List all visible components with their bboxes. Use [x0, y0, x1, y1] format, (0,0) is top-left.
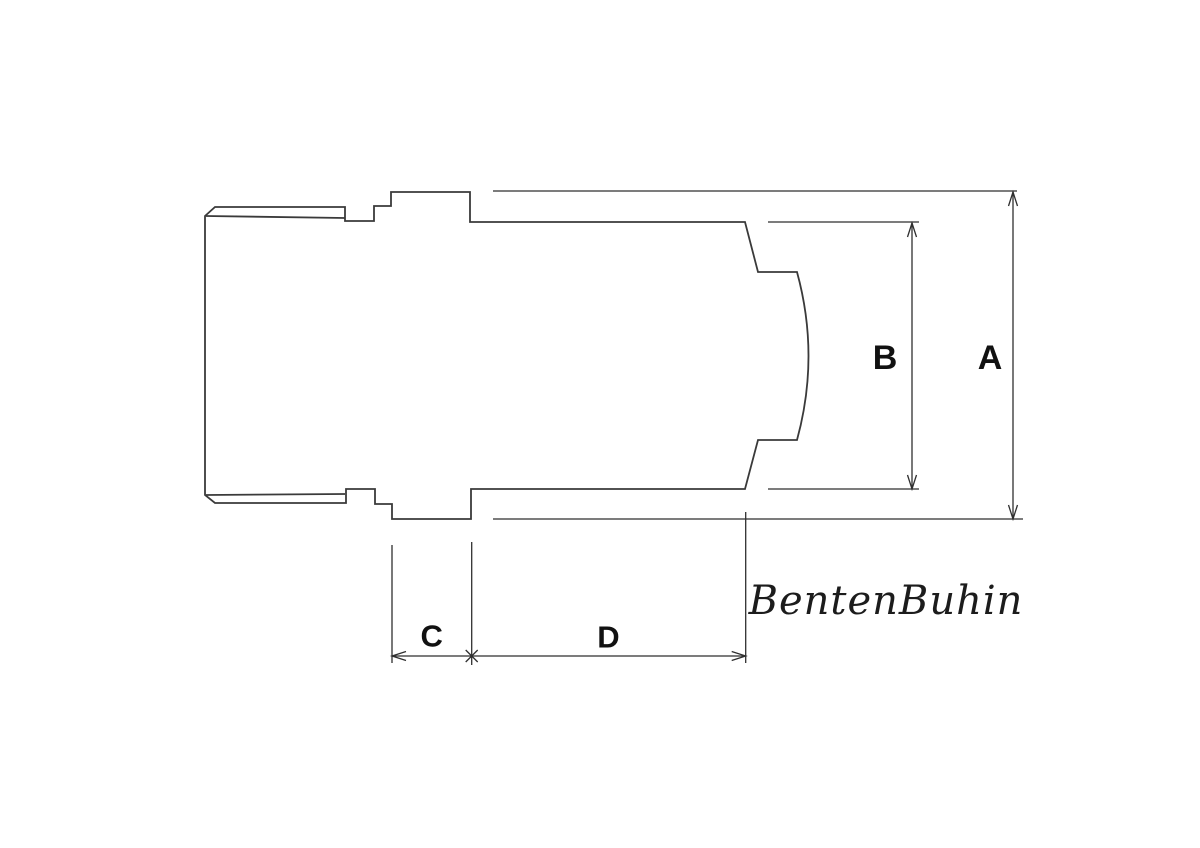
chamfer-edge-top [206, 216, 345, 218]
dimension-a [493, 191, 1023, 519]
dimension-c-label: C [421, 619, 443, 654]
dimension-b-label: B [873, 339, 898, 377]
drawing-canvas: A B C D BentenBuhin [0, 0, 1200, 848]
technical-drawing-svg: A B C D BentenBuhin [0, 0, 1200, 848]
watermark-brand-text: BentenBuhin [748, 578, 1024, 624]
dimension-d-label: D [597, 620, 619, 655]
chamfer-edge-bottom [206, 494, 345, 495]
dimension-a-label: A [978, 339, 1003, 377]
part-profile-path [205, 192, 809, 519]
part-outline [205, 192, 809, 519]
